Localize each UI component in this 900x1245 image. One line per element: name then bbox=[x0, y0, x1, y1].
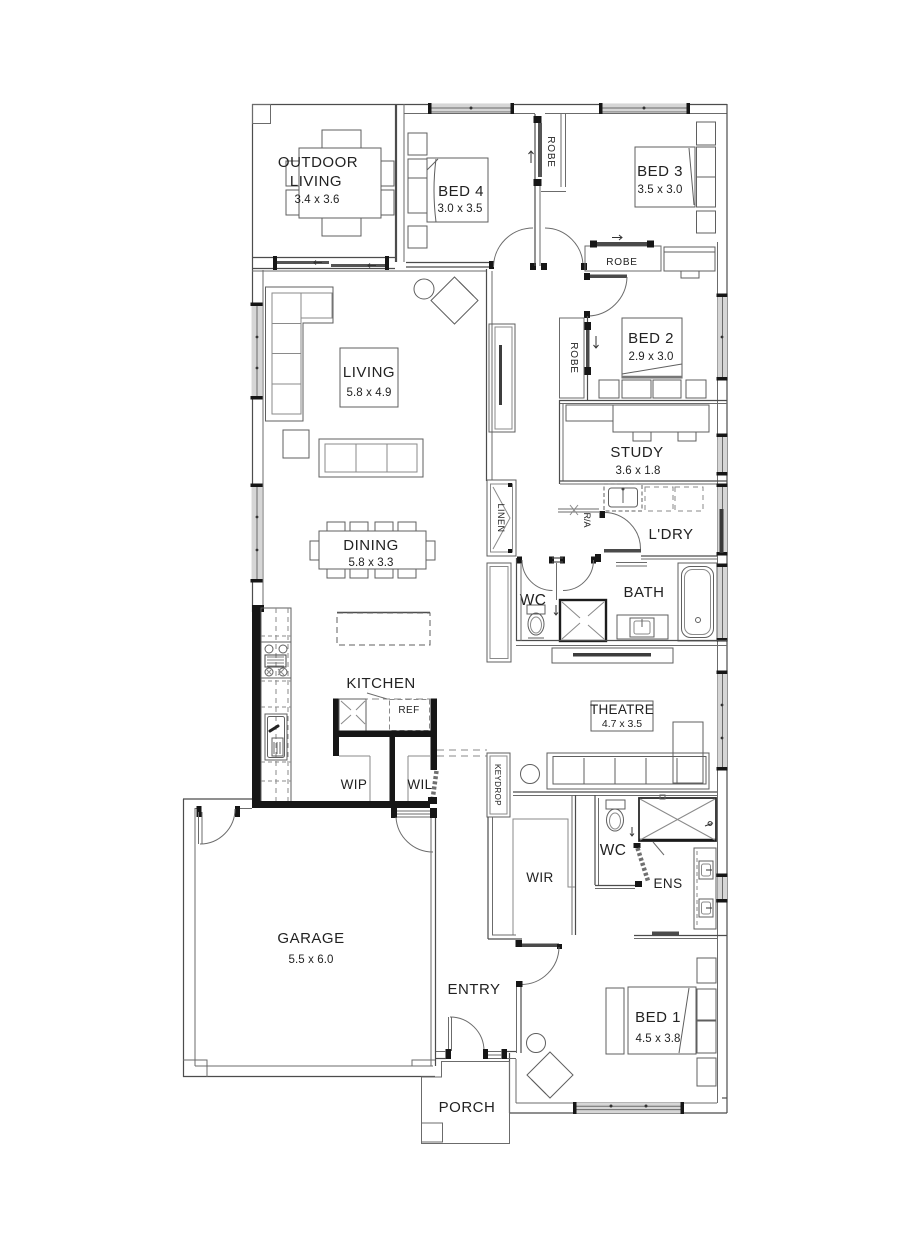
svg-text:WC: WC bbox=[520, 592, 547, 609]
svg-text:5.8 x 4.9: 5.8 x 4.9 bbox=[346, 387, 391, 399]
svg-text:THEATRE: THEATRE bbox=[590, 702, 654, 717]
svg-text:BED 1: BED 1 bbox=[635, 1009, 681, 1026]
svg-text:2.9 x 3.0: 2.9 x 3.0 bbox=[628, 351, 673, 363]
svg-text:BED 2: BED 2 bbox=[628, 330, 674, 347]
svg-text:KEYDROP: KEYDROP bbox=[493, 764, 502, 806]
svg-text:LINEN: LINEN bbox=[496, 503, 506, 532]
svg-text:GARAGE: GARAGE bbox=[277, 930, 344, 947]
svg-text:3.0 x 3.5: 3.0 x 3.5 bbox=[437, 203, 482, 215]
svg-text:LIVING: LIVING bbox=[290, 173, 342, 190]
svg-text:KITCHEN: KITCHEN bbox=[346, 675, 415, 692]
svg-text:R/A: R/A bbox=[582, 512, 592, 527]
svg-text:BATH: BATH bbox=[624, 584, 665, 601]
svg-text:ENS: ENS bbox=[654, 876, 683, 891]
svg-text:4.5 x 3.8: 4.5 x 3.8 bbox=[635, 1033, 680, 1045]
svg-text:ENTRY: ENTRY bbox=[447, 981, 500, 998]
svg-text:STUDY: STUDY bbox=[610, 444, 663, 461]
svg-text:BED 3: BED 3 bbox=[637, 163, 683, 180]
svg-text:BED 4: BED 4 bbox=[438, 183, 484, 200]
svg-text:3.6 x 1.8: 3.6 x 1.8 bbox=[615, 465, 660, 477]
svg-text:DINING: DINING bbox=[343, 537, 399, 554]
svg-text:LIVING: LIVING bbox=[343, 364, 395, 381]
svg-text:OUTDOOR: OUTDOOR bbox=[278, 154, 358, 171]
svg-text:ROBE: ROBE bbox=[606, 257, 638, 268]
svg-text:WC: WC bbox=[600, 842, 627, 859]
svg-text:ROBE: ROBE bbox=[545, 136, 556, 168]
svg-text:4.7 x 3.5: 4.7 x 3.5 bbox=[602, 718, 642, 730]
svg-text:WIL: WIL bbox=[407, 777, 432, 792]
svg-text:ROBE: ROBE bbox=[568, 342, 579, 374]
svg-text:PORCH: PORCH bbox=[439, 1099, 496, 1116]
svg-text:3.4 x 3.6: 3.4 x 3.6 bbox=[294, 194, 339, 206]
svg-text:WIP: WIP bbox=[341, 777, 368, 792]
svg-text:5.5 x 6.0: 5.5 x 6.0 bbox=[288, 954, 333, 966]
svg-text:3.5 x 3.0: 3.5 x 3.0 bbox=[637, 184, 682, 196]
svg-text:WIR: WIR bbox=[526, 870, 553, 885]
svg-text:5.8 x 3.3: 5.8 x 3.3 bbox=[348, 557, 393, 569]
svg-text:REF: REF bbox=[398, 705, 419, 716]
svg-text:L'DRY: L'DRY bbox=[648, 526, 693, 543]
